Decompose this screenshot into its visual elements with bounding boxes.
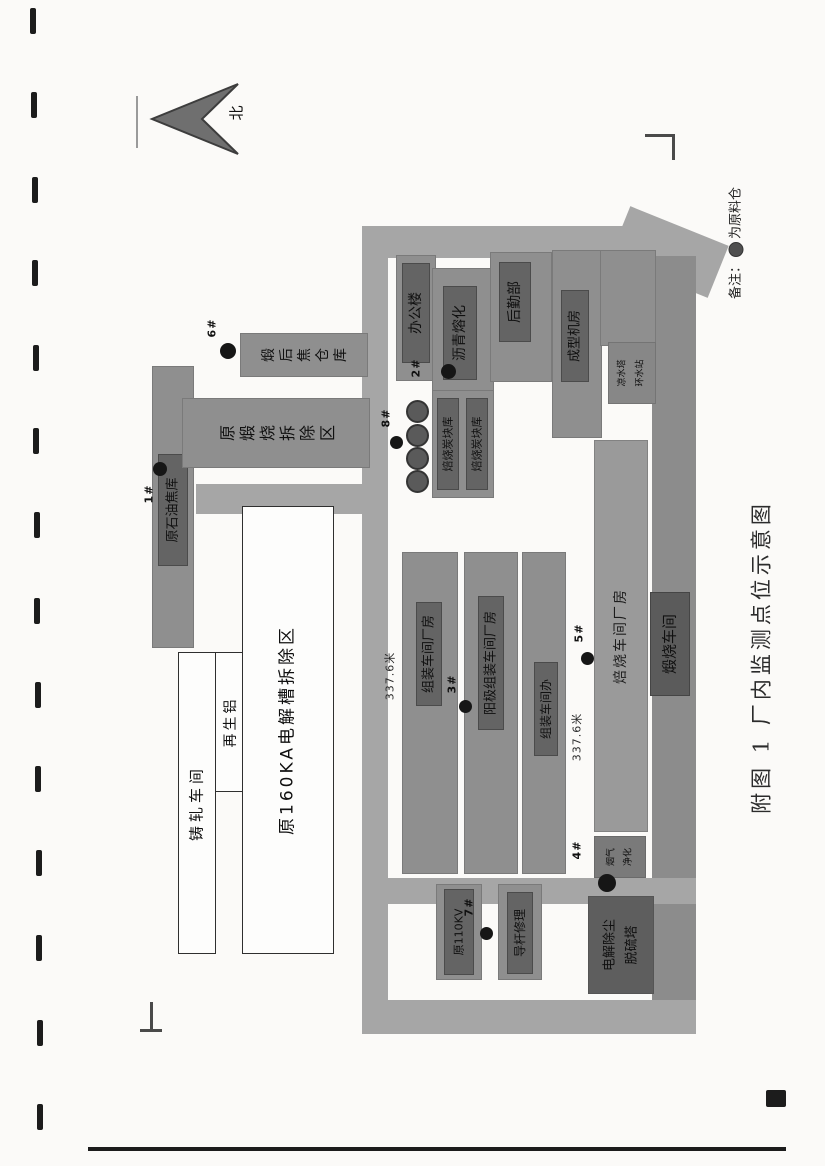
building-flue-gas-purification: 烟气 净化 — [594, 836, 646, 878]
building-baking-workshop: 焙烧车间厂房 — [594, 440, 648, 832]
building-forming-machine-room: 成型机房 — [552, 250, 602, 438]
building-desulfurization-tower: 电解除尘 脱硫塔 — [588, 896, 654, 994]
monitoring-label-6: 6# — [207, 319, 218, 338]
monitoring-label-2: 2# — [411, 359, 422, 378]
raw-material-silo-legend-icon — [729, 242, 744, 257]
scan-mark — [33, 345, 39, 371]
monitoring-label-1: 1# — [144, 485, 155, 504]
dimension-right-road: 337.6米 — [572, 713, 583, 762]
raw-material-silo — [406, 447, 429, 470]
scan-mark — [37, 1020, 43, 1046]
monitoring-dot-4 — [598, 874, 616, 892]
building-anode-rodding-workshop: 阳极组装车间厂房 — [464, 552, 518, 874]
logistics-label-box: 后勤部 — [499, 262, 531, 342]
legend: 备注：为原料仓 — [729, 187, 744, 299]
scan-blot — [766, 1090, 786, 1107]
scan-mark — [34, 598, 40, 624]
rodding-workshop-label-box: 组装车间厂房 — [416, 602, 442, 706]
rod-repair-label: 导杆修理 — [514, 909, 526, 957]
fluegas-line2: 净化 — [625, 848, 634, 866]
monitoring-dot-1 — [153, 462, 167, 476]
anode-rodding-label-box: 阳极组装车间厂房 — [478, 596, 504, 730]
scan-mark — [34, 512, 40, 538]
building-calcined-coke-store: 煅后焦仓库 — [240, 333, 368, 377]
scan-mark — [31, 92, 37, 118]
scan-mark — [36, 935, 42, 961]
building-former-160ka-potline-area: 原160KA电解槽拆除区 — [242, 506, 334, 954]
baking-workshop-label: 焙烧车间厂房 — [614, 588, 628, 684]
casting-rolling-label: 铸轧车间 — [190, 765, 205, 841]
scan-bottom-line — [88, 1147, 786, 1151]
baked-block-store-a-box: 焙烧炭块库 — [437, 398, 459, 490]
monitoring-dot-6 — [220, 343, 236, 359]
calcined-coke-store-label: 煅后焦仓库 — [240, 333, 368, 377]
recycled-aluminum-label: 再生铝 — [224, 697, 238, 748]
rod-repair-label-box: 导杆修理 — [507, 892, 533, 974]
building-corner-fill — [600, 250, 656, 346]
desulf-line1: 电解除尘 — [604, 919, 617, 971]
forming-room-label: 成型机房 — [569, 310, 582, 362]
scanned-factory-map-page: 北 备注：为原料仓 原石油焦库 煅后焦仓库 原煅烧拆除区 铸轧车间 再生铝 原1… — [0, 0, 825, 1166]
building-baked-block-stores: 焙烧炭块库 焙烧炭块库 — [432, 390, 494, 498]
baked-block-store-b-label: 焙烧炭块库 — [472, 417, 483, 472]
crop-mark — [150, 1002, 153, 1032]
building-rodding-workshop: 组装车间厂房 — [402, 552, 458, 874]
baked-block-store-a-label: 焙烧炭块库 — [443, 417, 454, 472]
raw-material-silo — [406, 470, 429, 493]
rodding-workshop-label: 组装车间厂房 — [423, 615, 436, 693]
pitch-melting-label: 沥青熔化 — [453, 305, 467, 361]
cooling-line2: 环水站 — [637, 359, 646, 386]
scan-mark — [36, 850, 42, 876]
building-cooling-water-station: 凉水塔 环水站 — [608, 342, 656, 404]
dimension-left-road: 337.6米 — [385, 652, 396, 701]
rodding-office-label-box: 组装车间办 — [534, 662, 558, 756]
office-label-box: 办公楼 — [402, 263, 430, 363]
desulf-line2: 脱硫塔 — [626, 925, 639, 964]
monitoring-dot-7 — [480, 927, 493, 940]
raw-material-silo — [406, 424, 429, 447]
former-calcining-area-label: 原煅烧拆除区 — [182, 398, 370, 468]
anode-rodding-label: 阳极组装车间厂房 — [485, 611, 498, 715]
forming-room-label-box: 成型机房 — [561, 290, 589, 382]
logistics-label: 后勤部 — [508, 281, 522, 323]
monitoring-dot-8 — [390, 436, 403, 449]
calcining-workshop-label: 煅烧车间 — [663, 614, 678, 674]
raw-material-silo — [406, 400, 429, 423]
scan-mark — [35, 766, 41, 792]
cooling-line1: 凉水塔 — [619, 359, 628, 386]
monitoring-label-8: 8# — [381, 409, 392, 428]
scan-mark — [32, 260, 38, 286]
building-rodding-office-strip: 组装车间办 — [522, 552, 566, 874]
monitoring-label-3: 3# — [447, 675, 458, 694]
calcining-workshop-label-box: 煅烧车间 — [650, 592, 690, 696]
building-rod-repair: 导杆修理 — [498, 884, 542, 980]
legend-prefix: 备注： — [730, 260, 743, 299]
building-former-calcining-demolition-area: 原煅烧拆除区 — [182, 398, 370, 468]
monitoring-label-5: 5# — [574, 624, 585, 643]
crop-mark — [140, 1029, 162, 1032]
north-label: 北 — [230, 105, 245, 120]
monitoring-label-7: 7# — [464, 898, 475, 917]
figure-caption: 附图 1 厂内监测点位示意图 — [752, 500, 773, 814]
monitoring-dot-2 — [441, 364, 456, 379]
monitoring-dot-3 — [459, 700, 472, 713]
scan-mark — [32, 177, 38, 203]
scan-mark — [37, 1104, 43, 1130]
crop-mark — [136, 96, 138, 148]
legend-suffix: 为原料仓 — [730, 187, 743, 239]
raw-petroleum-coke-label: 原石油焦库 — [167, 477, 180, 542]
building-logistics: 后勤部 — [490, 252, 552, 382]
monitoring-dot-5 — [581, 652, 594, 665]
scan-mark — [33, 428, 39, 454]
crop-mark — [645, 134, 675, 137]
building-casting-rolling-workshop: 铸轧车间 — [178, 652, 216, 954]
fluegas-line1: 烟气 — [608, 848, 617, 866]
rodding-office-label: 组装车间办 — [540, 679, 552, 739]
scan-mark — [30, 8, 36, 34]
crop-mark — [672, 134, 675, 160]
monitoring-label-4: 4# — [572, 841, 583, 860]
baked-block-store-b-box: 焙烧炭块库 — [466, 398, 488, 490]
road-bottom — [362, 1000, 696, 1034]
office-label: 办公楼 — [409, 292, 423, 334]
scan-mark — [35, 682, 41, 708]
former-potline-label: 原160KA电解槽拆除区 — [280, 625, 297, 835]
